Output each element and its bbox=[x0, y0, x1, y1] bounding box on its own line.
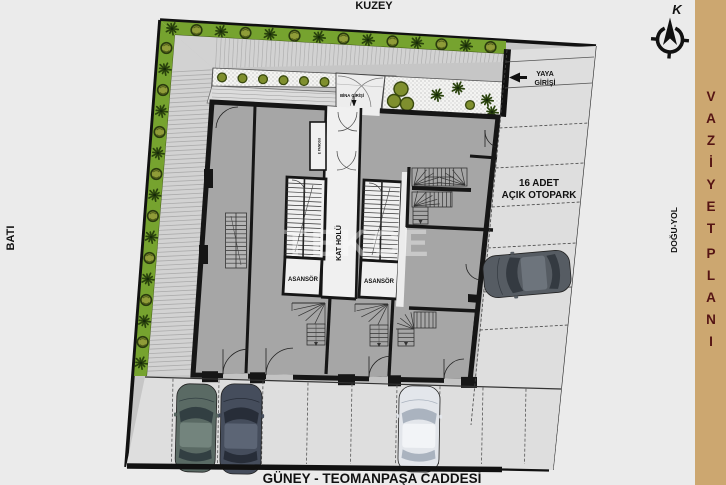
svg-text:A: A bbox=[706, 111, 716, 126]
svg-text:GİRİŞİ: GİRİŞİ bbox=[534, 79, 555, 87]
svg-text:BATI: BATI bbox=[5, 226, 17, 251]
svg-text:İ: İ bbox=[709, 155, 713, 170]
svg-text:ASANSÖR: ASANSÖR bbox=[288, 276, 319, 283]
svg-text:BİNA GİRİŞİ: BİNA GİRİŞİ bbox=[340, 93, 364, 98]
svg-text:P: P bbox=[706, 246, 715, 261]
svg-text:N: N bbox=[706, 312, 716, 327]
svg-text:AÇIK OTOPARK: AÇIK OTOPARK bbox=[502, 190, 577, 201]
svg-text:K: K bbox=[672, 2, 683, 17]
svg-text:DOĞU-YOL: DOĞU-YOL bbox=[668, 207, 679, 253]
svg-text:TEKCE: TEKCE bbox=[284, 223, 433, 265]
svg-text:16 ADET: 16 ADET bbox=[519, 178, 559, 189]
svg-text:KUZEY: KUZEY bbox=[355, 0, 393, 12]
svg-text:YAYA: YAYA bbox=[536, 71, 554, 78]
svg-text:ASANSÖR: ASANSÖR bbox=[364, 278, 395, 285]
svg-text:I: I bbox=[709, 334, 713, 349]
svg-text:Z: Z bbox=[707, 133, 715, 148]
svg-text:GÜNEY - TEOMANPAŞA CADDESİ: GÜNEY - TEOMANPAŞA CADDESİ bbox=[263, 471, 482, 485]
svg-text:Y: Y bbox=[706, 177, 715, 192]
svg-text:V: V bbox=[706, 89, 715, 104]
svg-text:E: E bbox=[706, 199, 715, 214]
svg-text:T: T bbox=[707, 221, 716, 236]
svg-text:E PANOSU: E PANOSU bbox=[318, 137, 322, 154]
svg-text:L: L bbox=[707, 268, 715, 283]
svg-text:A: A bbox=[706, 290, 716, 305]
